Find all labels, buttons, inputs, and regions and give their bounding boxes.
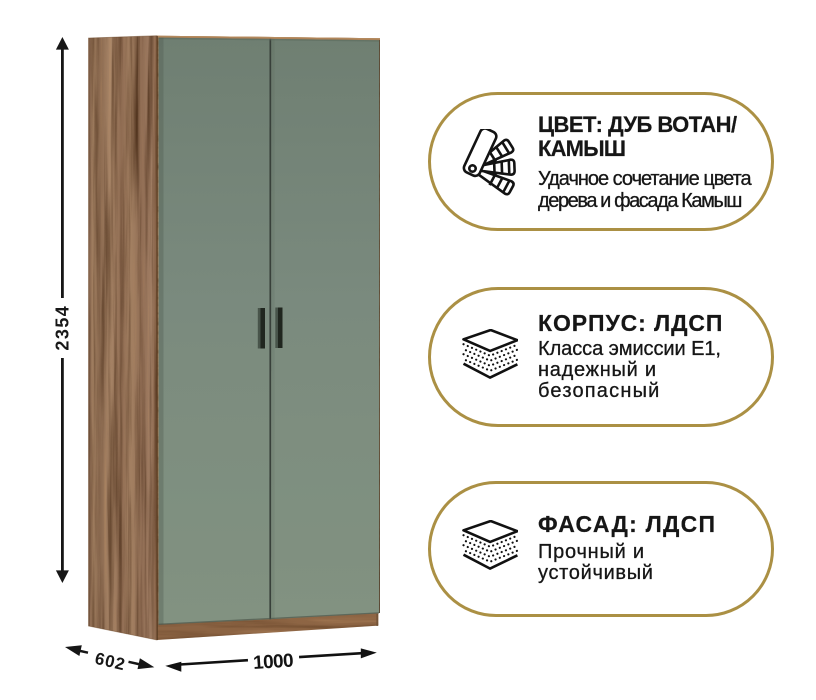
svg-text:602: 602 bbox=[93, 649, 127, 674]
svg-text:2354: 2354 bbox=[52, 305, 72, 351]
svg-text:1000: 1000 bbox=[252, 651, 293, 674]
